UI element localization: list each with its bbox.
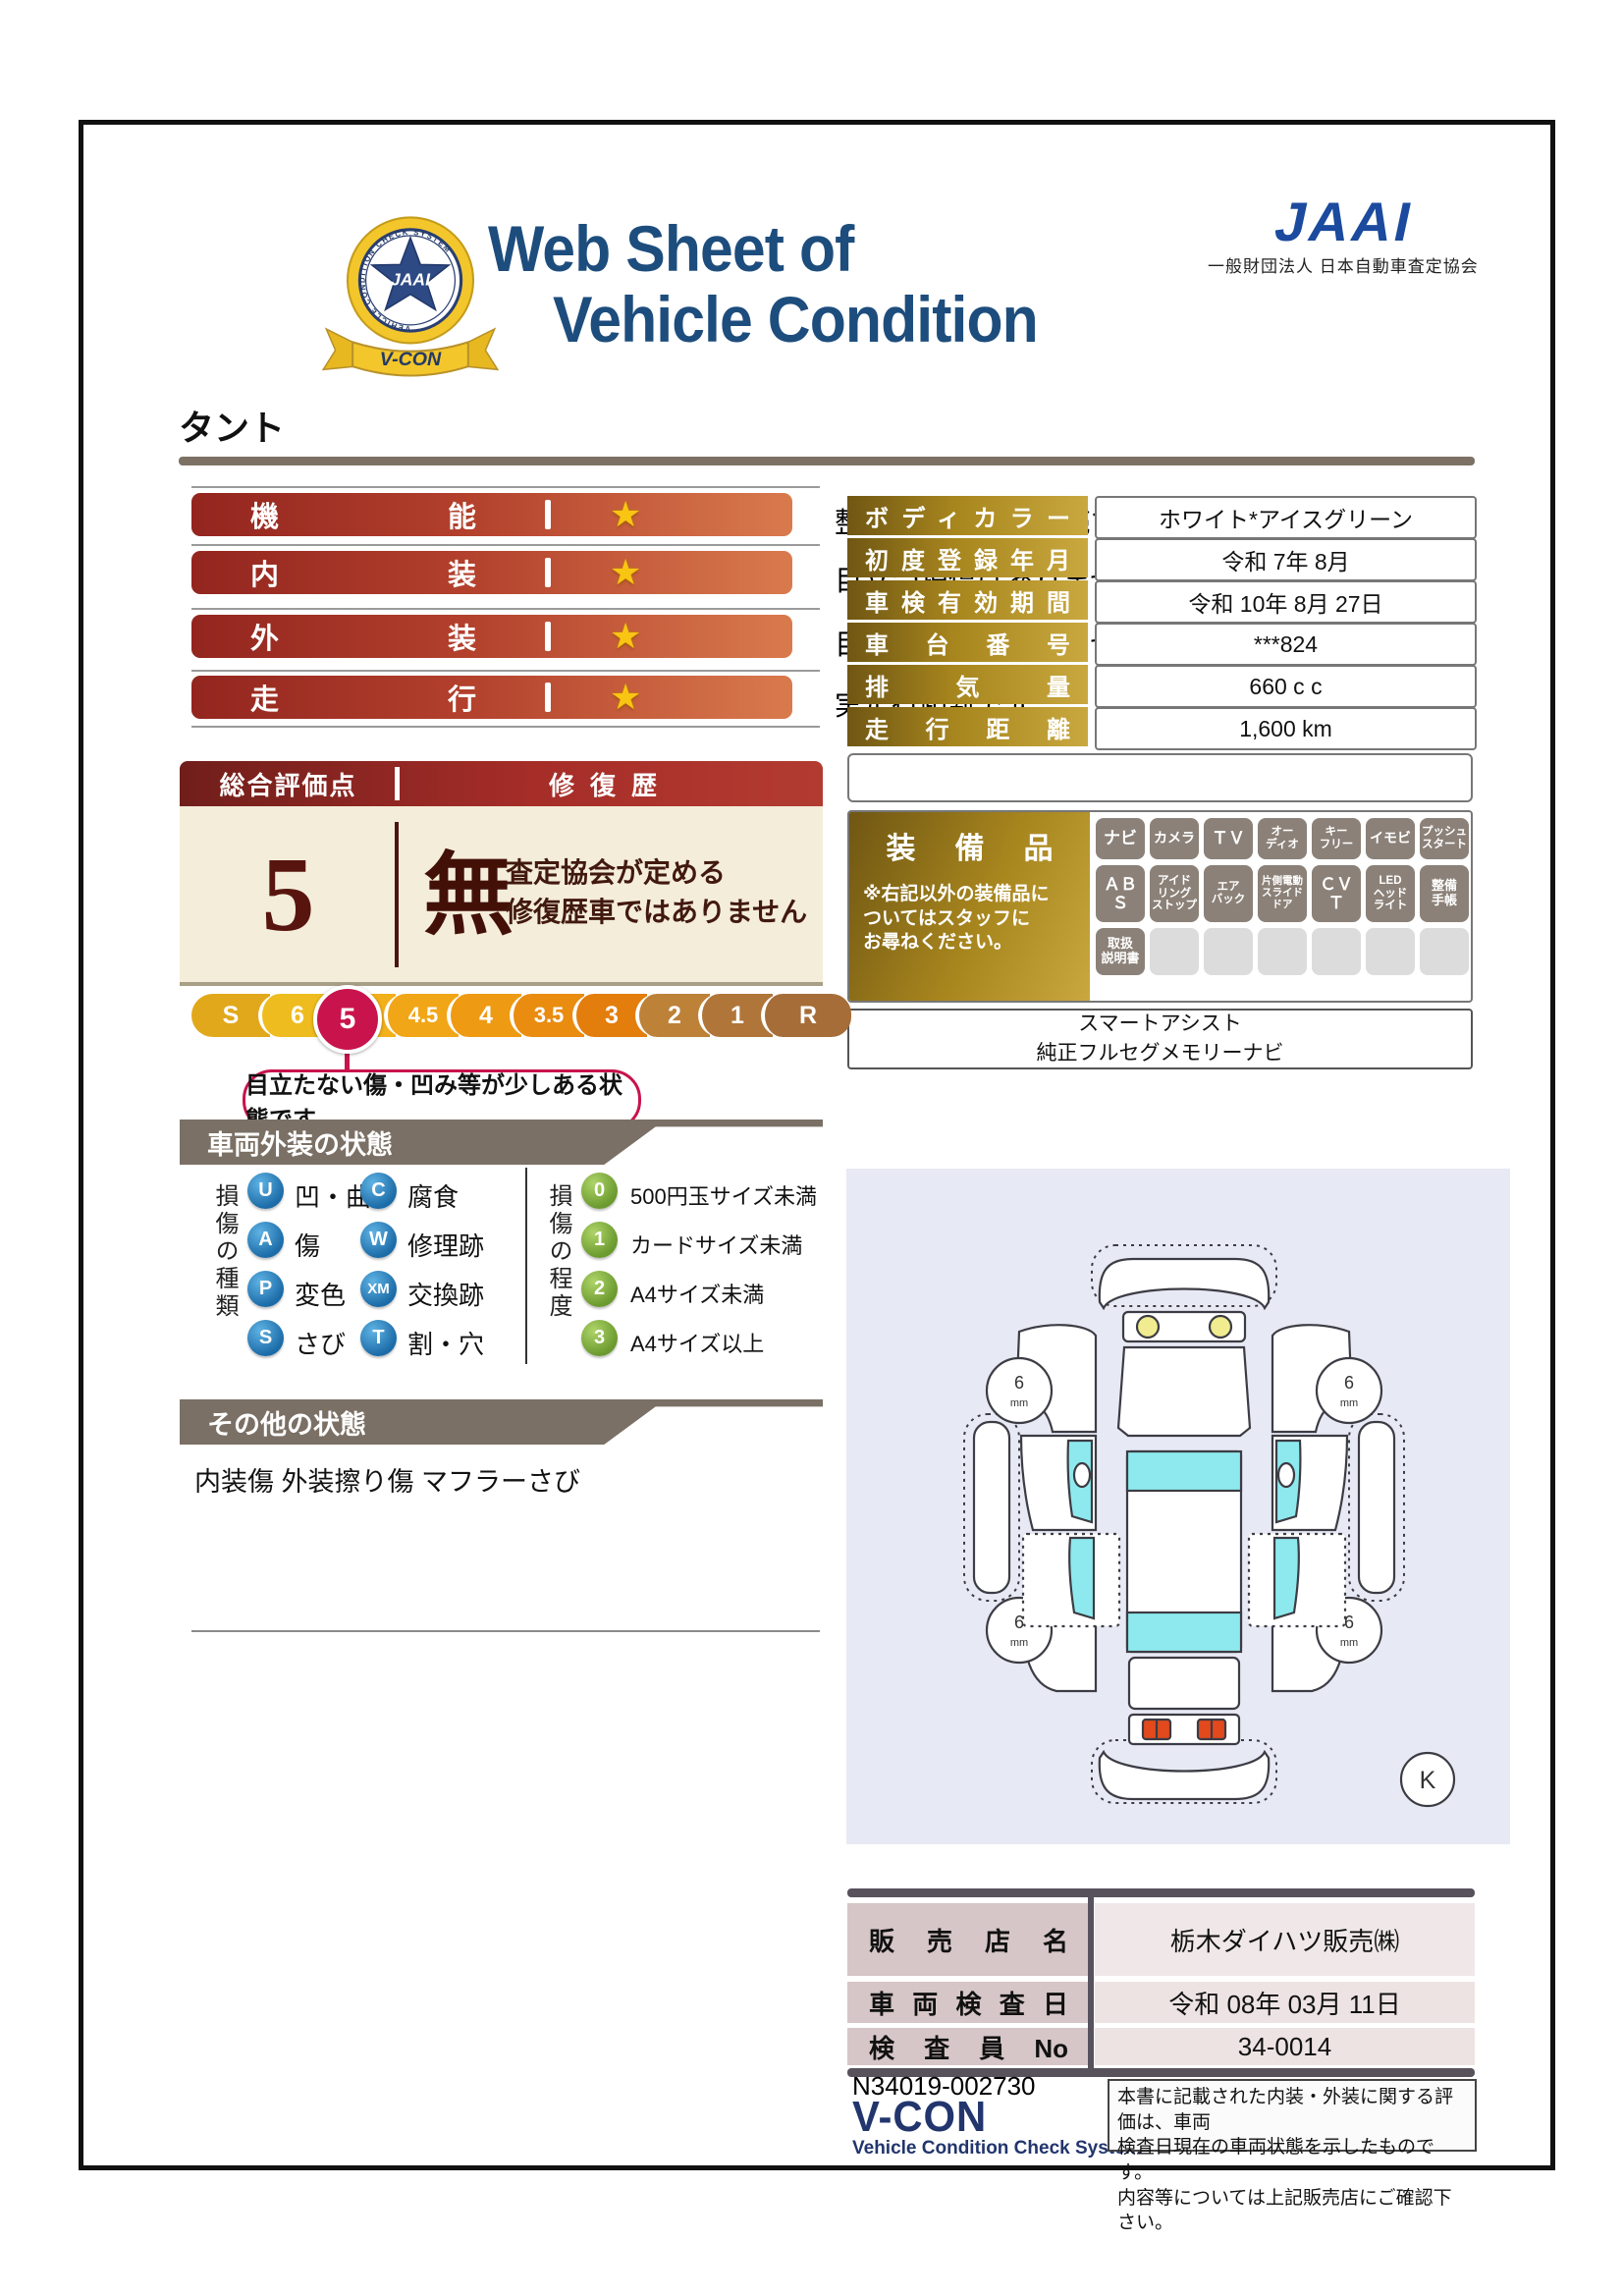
detail-label-mileage: 走行距離 — [847, 707, 1088, 746]
detail-value-firstreg: 令和 7年 8月 — [1095, 538, 1477, 581]
extra-equipment-line1: スマートアシスト — [1078, 1010, 1242, 1039]
degree-code-3: 3 — [581, 1320, 618, 1356]
damage-type-header: 損傷の種類 — [207, 1183, 242, 1321]
vcon-logo-subtitle: Vehicle Condition Check System — [852, 2138, 1142, 2159]
star-icon: ★ — [610, 616, 641, 657]
degree-code-0: 0 — [581, 1173, 618, 1209]
legend-divider — [525, 1168, 527, 1364]
damage-label: さび — [295, 1325, 346, 1361]
disclaimer-box: 本書に記載された内装・外装に関する評価は、車両 検査日現在の車両状態を示したもの… — [1108, 2079, 1477, 2152]
disclaimer-line3: 内容等については上記販売店にご確認下さい。 — [1117, 2186, 1467, 2236]
degree-code-1: 1 — [581, 1222, 618, 1258]
repair-status-value: 無 — [423, 822, 514, 969]
equipment-badge-empty — [1420, 928, 1469, 975]
rating-row-mileage: 走行 ★ — [191, 676, 792, 719]
star-icon: ★ — [610, 494, 641, 535]
equipment-badge-tv: ＴＶ — [1204, 818, 1253, 859]
equipment-badge-empty — [1312, 928, 1361, 975]
notes-empty-box — [847, 753, 1473, 802]
separator — [191, 544, 820, 546]
dealer-table-top-bar — [847, 1888, 1475, 1897]
rating-label: 外装 — [250, 616, 476, 657]
jaai-logo: JAAI — [1270, 190, 1420, 253]
disclaimer-line2: 検査日現在の車両状態を示したものです。 — [1117, 2135, 1467, 2185]
page-title-line1: Web Sheet of — [488, 211, 853, 286]
degree-label: A4サイズ以上 — [630, 1327, 764, 1358]
degree-code-2: 2 — [581, 1271, 618, 1307]
equipment-badge-ledheadlight: LED ヘッド ライト — [1366, 865, 1415, 922]
equipment-note-line2: ついてはスタッフに — [863, 907, 1080, 932]
dealer-value: 令和 08年 03月 11日 — [1095, 1982, 1475, 2023]
star-icon: ★ — [610, 552, 641, 593]
dealer-value: 34-0014 — [1095, 2028, 1475, 2065]
rating-label: 走行 — [250, 677, 476, 718]
detail-label-firstreg: 初度登録年月 — [847, 538, 1088, 577]
extra-equipment-line2: 純正フルセグメモリーナビ — [1037, 1039, 1284, 1068]
wheel-depth-unit: mm — [1010, 1637, 1028, 1649]
scale-seg-r: R — [761, 994, 851, 1037]
pill-divider — [545, 683, 551, 712]
equipment-badge-navi: ナビ — [1096, 818, 1145, 859]
equipment-badge-idlingstop: アイド リング ストップ — [1150, 865, 1199, 922]
sheet-frame: VEHICLE CONDITION CHECK SYSTEM JAAI V-CO… — [79, 120, 1555, 2170]
page-title-line2: Vehicle Condition — [553, 282, 1038, 356]
damage-label: 修理跡 — [407, 1227, 484, 1263]
other-condition-text: 内装傷 外装擦り傷 マフラーさび — [194, 1460, 580, 1499]
section-title: その他の状態 — [207, 1403, 366, 1442]
dealer-label: 販売店名 — [847, 1903, 1090, 1976]
overall-body: 5 無 査定協会が定める 修復歴車ではありません — [180, 806, 823, 986]
dealer-row-inspector: 検査員No 34-0014 — [847, 2028, 1475, 2065]
equipment-badge-manual: 取扱 説明書 — [1096, 928, 1145, 975]
equipment-note-line1: ※右記以外の装備品に — [863, 883, 1080, 907]
wheel-depth-value: 6 — [1344, 1373, 1354, 1393]
damage-label: 交換跡 — [407, 1276, 484, 1312]
equipment-badge-keyfree: キー フリー — [1312, 818, 1361, 859]
damage-code-xm: XM — [360, 1271, 397, 1307]
equipment-box: 装備品 ※右記以外の装備品に ついてはスタッフに お尋ねください。 ナビ カメラ… — [847, 810, 1473, 1003]
rating-row-interior: 内装 ★ — [191, 551, 792, 594]
repair-desc-line1: 査定協会が定める — [506, 851, 726, 891]
equipment-note-line3: お尋ねください。 — [863, 931, 1080, 956]
divider-rule — [179, 457, 1475, 465]
detail-value-bodycolor: ホワイト*アイスグリーン — [1095, 496, 1477, 539]
degree-label: 500円玉サイズ未満 — [630, 1179, 817, 1211]
damage-code-s: S — [247, 1320, 284, 1356]
separator — [191, 670, 820, 672]
equipment-badge-camera: カメラ — [1150, 818, 1199, 859]
detail-label-inspection: 車検有効期間 — [847, 580, 1088, 620]
dealer-row-name: 販売店名 栃木ダイハツ販売㈱ — [847, 1903, 1475, 1976]
detail-label-bodycolor: ボディカラー — [847, 496, 1088, 535]
car-diagram: 6 mm 6 mm 6 mm 6 mm K — [846, 1169, 1510, 1844]
damage-code-p: P — [247, 1271, 284, 1307]
separator — [191, 608, 820, 610]
dealer-row-date: 車両検査日 令和 08年 03月 11日 — [847, 1982, 1475, 2023]
equipment-title-panel: 装備品 ※右記以外の装備品に ついてはスタッフに お尋ねください。 — [849, 812, 1090, 1001]
equipment-badge-empty — [1150, 928, 1199, 975]
repair-history-header: 修復歴 — [400, 761, 822, 806]
separator — [191, 726, 820, 728]
exterior-section-header: 車両外装の状態 — [180, 1120, 823, 1165]
car-diagram-panel: 6 mm 6 mm 6 mm 6 mm K — [846, 1169, 1510, 1844]
equipment-badge-empty — [1366, 928, 1415, 975]
wheel-depth-unit: mm — [1010, 1397, 1028, 1409]
star-icon: ★ — [610, 677, 641, 718]
damage-code-w: W — [360, 1222, 397, 1258]
vcon-logo: V-CON — [852, 2093, 987, 2142]
wheel-depth-value: 6 — [1014, 1373, 1024, 1393]
equipment-badge-audio: オー ディオ — [1258, 818, 1307, 859]
dealer-table-divider — [1088, 1888, 1094, 2075]
rating-row-exterior: 外装 ★ — [191, 615, 792, 658]
damage-code-u: U — [247, 1173, 284, 1209]
rating-row-function: 機能 ★ — [191, 493, 792, 536]
repair-desc-line2: 修復歴車ではありません — [506, 891, 807, 930]
rating-label: 機能 — [250, 494, 476, 535]
vehicle-name: タント — [179, 400, 285, 451]
extra-equipment-box: スマートアシスト 純正フルセグメモリーナビ — [847, 1009, 1473, 1069]
equipment-badge-pushstart: プッシュ スタート — [1420, 818, 1469, 859]
pill-divider — [545, 558, 551, 587]
wheel-depth-value: 6 — [1014, 1613, 1024, 1632]
equipment-badge-powerslide: 片側電動 スライド ドア — [1258, 865, 1307, 922]
emblem-ribbon-text: V-CON — [380, 349, 442, 370]
detail-value-inspection: 令和 10年 8月 27日 — [1095, 580, 1477, 624]
dealer-label: 検査員No — [847, 2028, 1090, 2065]
damage-degree-header: 損傷の程度 — [541, 1183, 575, 1321]
overall-header: 総合評価点 修復歴 — [180, 761, 823, 806]
wheel-depth-value: 6 — [1344, 1613, 1354, 1632]
damage-label: 傷 — [295, 1227, 320, 1263]
score-scale: S 6 4.5 4 3.5 3 2 1 R — [191, 994, 851, 1037]
damage-code-t: T — [360, 1320, 397, 1356]
detail-label-chassis: 車台番号 — [847, 623, 1088, 662]
disclaimer-line1: 本書に記載された内装・外装に関する評価は、車両 — [1117, 2085, 1467, 2135]
equipment-title: 装備品 — [887, 824, 1054, 867]
equipment-badge-cvt: ＣＶＴ — [1312, 865, 1361, 922]
degree-label: カードサイズ未満 — [630, 1229, 802, 1260]
equipment-badge-empty — [1204, 928, 1253, 975]
equipment-badge-immobilizer: イモビ — [1366, 818, 1415, 859]
damage-code-c: C — [360, 1173, 397, 1209]
detail-value-chassis: ***824 — [1095, 623, 1477, 666]
damage-label: 凹・曲 — [295, 1177, 371, 1214]
diagram-marker-k: K — [1420, 1767, 1436, 1794]
damage-label: 割・穴 — [407, 1325, 484, 1361]
emblem-center-text: JAAI — [391, 270, 431, 290]
section-title: 車両外装の状態 — [207, 1123, 393, 1162]
dealer-value: 栃木ダイハツ販売㈱ — [1095, 1903, 1475, 1976]
degree-label: A4サイズ未満 — [630, 1278, 764, 1309]
equipment-grid: ナビ カメラ ＴＶ オー ディオ キー フリー イモビ プッシュ スタート ＡＢ… — [1090, 812, 1473, 1001]
equipment-badge-empty — [1258, 928, 1307, 975]
separator — [191, 1630, 820, 1632]
wheel-depth-unit: mm — [1340, 1397, 1358, 1409]
detail-label-displacement: 排気量 — [847, 665, 1088, 704]
overall-score-header: 総合評価点 — [180, 761, 397, 806]
detail-value-displacement: 660 c c — [1095, 665, 1477, 708]
equipment-badge-servicebook: 整備 手帳 — [1420, 865, 1469, 922]
overall-score-box: 総合評価点 修復歴 5 無 査定協会が定める 修復歴車ではありません — [180, 761, 823, 982]
body-divider — [395, 822, 399, 967]
dealer-label: 車両検査日 — [847, 1982, 1090, 2023]
other-section-header: その他の状態 — [180, 1399, 823, 1445]
damage-label: 腐食 — [407, 1177, 459, 1214]
damage-code-a: A — [247, 1222, 284, 1258]
separator — [191, 486, 820, 488]
pill-divider — [545, 622, 551, 651]
overall-score-value: 5 — [180, 814, 397, 976]
equipment-badge-airbag: エア バック — [1204, 865, 1253, 922]
equipment-badge-abs: ＡＢＳ — [1096, 865, 1145, 922]
pill-divider — [545, 500, 551, 529]
wheel-depth-unit: mm — [1340, 1637, 1358, 1649]
selected-score-marker: 5 — [313, 985, 382, 1054]
jaai-subtitle: 一般財団法人 日本自動車査定協会 — [1208, 252, 1479, 277]
damage-label: 変色 — [295, 1276, 346, 1312]
rating-label: 内装 — [250, 552, 476, 593]
detail-value-mileage: 1,600 km — [1095, 707, 1477, 750]
